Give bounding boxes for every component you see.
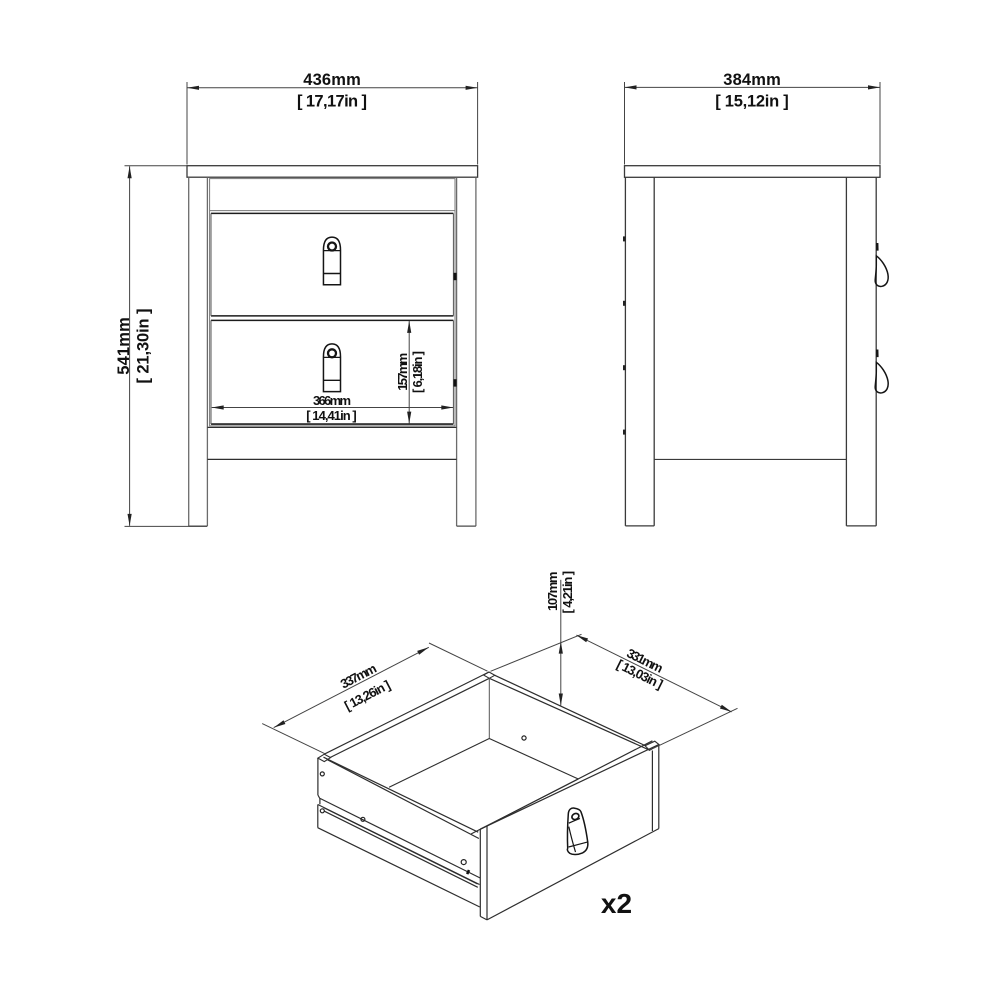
svg-text:366mm: 366mm [313,393,351,408]
svg-text:384mm: 384mm [723,71,781,89]
svg-text:[ 14,41in ]: [ 14,41in ] [306,408,357,423]
svg-text:157mm: 157mm [395,353,410,391]
svg-text:[ 4,21in ]: [ 4,21in ] [560,571,575,614]
svg-text:541mm: 541mm [115,317,133,375]
svg-text:x2: x2 [601,888,632,919]
svg-text:436mm: 436mm [303,71,361,89]
svg-text:[ 17,17in ]: [ 17,17in ] [297,93,367,111]
svg-text:[ 6,18in ]: [ 6,18in ] [410,351,425,393]
svg-text:[ 15,12in ]: [ 15,12in ] [715,93,789,111]
svg-text:[ 21,30in ]: [ 21,30in ] [135,309,153,384]
svg-text:107mm: 107mm [545,572,560,612]
